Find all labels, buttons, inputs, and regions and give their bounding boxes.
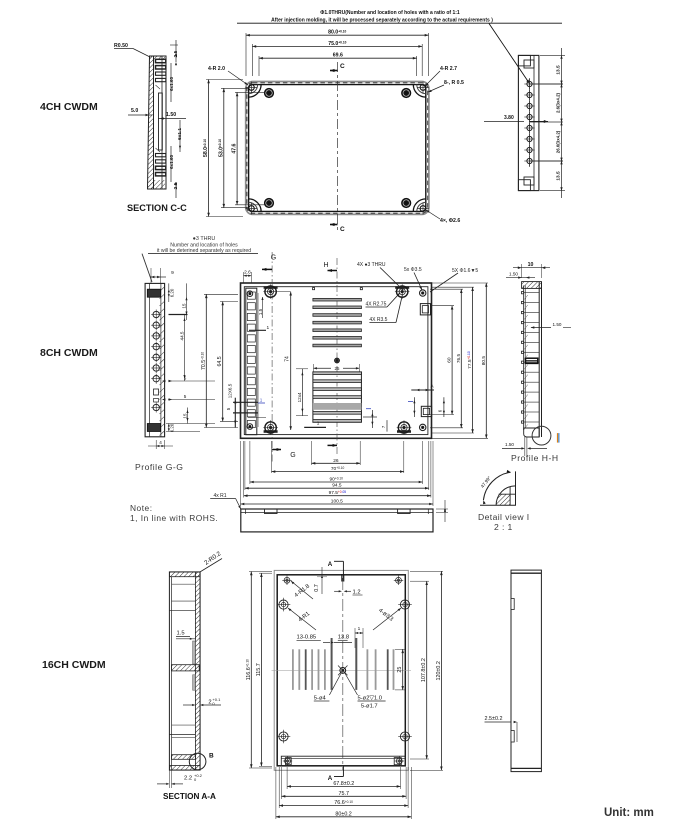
- svg-text:1.5: 1.5: [177, 631, 185, 637]
- svg-text:4-R1.8: 4-R1.8: [294, 583, 311, 598]
- svg-text:A: A: [328, 561, 333, 568]
- svg-text:94.5: 94.5: [332, 483, 342, 489]
- svg-text:76.6+0.10: 76.6+0.10: [334, 800, 353, 806]
- svg-text:G: G: [271, 255, 276, 262]
- svg-text:1: 1: [358, 626, 361, 632]
- svg-text:53.0±0.10: 53.0±0.10: [218, 139, 224, 157]
- svg-text:2.5±0.2: 2.5±0.2: [485, 716, 503, 722]
- svg-text:6.20: 6.20: [170, 423, 175, 432]
- svg-text:2.6: 2.6: [244, 270, 251, 276]
- svg-text:13.5: 13.5: [556, 171, 562, 181]
- svg-text:12x4: 12x4: [297, 392, 302, 402]
- svg-text:16CH CWDM: 16CH CWDM: [42, 659, 106, 671]
- svg-text:5-ø1.7: 5-ø1.7: [361, 704, 378, 710]
- svg-text:4X R2.75: 4X R2.75: [366, 302, 387, 308]
- svg-text:Unit: mm: Unit: mm: [604, 807, 654, 819]
- svg-text:15: 15: [183, 413, 188, 418]
- svg-text:1.2: 1.2: [353, 590, 361, 596]
- svg-text:67.8±0.2: 67.8±0.2: [333, 781, 354, 787]
- svg-text:2 : 1: 2 : 1: [494, 522, 513, 532]
- svg-text:10: 10: [528, 262, 534, 268]
- svg-text:●3 THRU: ●3 THRU: [193, 236, 216, 242]
- svg-text:9: 9: [171, 270, 174, 276]
- svg-text:4X ●3 THRU: 4X ●3 THRU: [357, 262, 386, 268]
- svg-text:3.80: 3.80: [504, 115, 514, 121]
- svg-text:13-0.85: 13-0.85: [297, 635, 317, 641]
- svg-text:76.5: 76.5: [456, 354, 462, 364]
- svg-text:6: 6: [438, 409, 443, 412]
- svg-text:80±0.2: 80±0.2: [335, 811, 351, 817]
- svg-text:4X R3.5: 4X R3.5: [369, 317, 387, 323]
- svg-text:C: C: [340, 226, 345, 233]
- svg-text:Note:: Note:: [130, 503, 153, 513]
- svg-text:5: 5: [226, 407, 231, 410]
- svg-text:58.0±0.10: 58.0±0.10: [203, 139, 209, 157]
- svg-text:116.6+0.10: 116.6+0.10: [246, 659, 252, 680]
- svg-text:B: B: [209, 753, 214, 760]
- svg-text:4-R 2.0: 4-R 2.0: [208, 66, 225, 72]
- svg-text:5.0: 5.0: [131, 108, 138, 114]
- svg-text:G: G: [290, 452, 295, 459]
- svg-text:90+0.10: 90+0.10: [329, 476, 343, 482]
- svg-text:77.5+0.10: 77.5+0.10: [467, 351, 473, 369]
- svg-text:6x1.60: 6x1.60: [169, 155, 174, 169]
- svg-text:15: 15: [182, 303, 187, 308]
- svg-text:5-ø2▽1.0: 5-ø2▽1.0: [358, 696, 382, 702]
- svg-text:70+0.10: 70+0.10: [331, 466, 345, 472]
- svg-text:80.5: 80.5: [481, 356, 487, 366]
- svg-text:26.0(3x4.2): 26.0(3x4.2): [556, 130, 561, 153]
- svg-text:2: 2: [208, 700, 211, 706]
- svg-text:47.6: 47.6: [232, 143, 238, 153]
- svg-text:6x1.60: 6x1.60: [169, 77, 174, 91]
- svg-text:4-R 2.7: 4-R 2.7: [440, 66, 457, 72]
- svg-text:120±0.2: 120±0.2: [436, 661, 442, 680]
- svg-text:4x R1: 4x R1: [214, 493, 227, 499]
- svg-text:R0.50: R0.50: [114, 43, 128, 49]
- svg-text:12X6.5: 12X6.5: [227, 383, 232, 398]
- svg-text:4CH CWDM: 4CH CWDM: [40, 101, 98, 113]
- svg-text:1: 1: [267, 325, 270, 331]
- svg-text:100.5: 100.5: [331, 499, 343, 505]
- svg-text:1.5: 1.5: [258, 308, 263, 315]
- svg-text:After injection molding, it wi: After injection molding, it will be proc…: [271, 18, 493, 24]
- svg-text:70.5+0.10: 70.5+0.10: [201, 352, 207, 370]
- svg-text:1.50: 1.50: [509, 271, 518, 276]
- svg-text:2.6(3x4.2): 2.6(3x4.2): [556, 92, 561, 113]
- svg-text:13.5: 13.5: [556, 65, 562, 75]
- svg-text:8CH CWDM: 8CH CWDM: [40, 347, 98, 359]
- svg-text:80.0+0.10: 80.0+0.10: [328, 30, 346, 36]
- svg-text:8-, R 0.5: 8-, R 0.5: [444, 80, 464, 86]
- svg-text:5: 5: [184, 376, 187, 381]
- svg-text:1.50: 1.50: [166, 112, 176, 118]
- svg-text:Profile H-H: Profile H-H: [511, 453, 559, 463]
- svg-text:Profile G-G: Profile G-G: [135, 462, 183, 472]
- svg-text:25: 25: [335, 366, 340, 371]
- svg-text:64.5: 64.5: [217, 356, 223, 366]
- svg-text:A: A: [328, 775, 333, 782]
- svg-text:25: 25: [397, 667, 403, 673]
- svg-text:2.2: 2.2: [184, 776, 192, 782]
- svg-text:1.50: 1.50: [553, 322, 562, 327]
- svg-text:4: 4: [159, 440, 162, 445]
- svg-text:C: C: [340, 63, 345, 70]
- svg-text:1: 1: [260, 398, 263, 403]
- svg-text:H: H: [323, 262, 328, 269]
- svg-text:5: 5: [184, 394, 187, 399]
- svg-text:5-ø4: 5-ø4: [314, 696, 327, 702]
- svg-text:SECTION C-C: SECTION C-C: [127, 203, 187, 213]
- svg-text:5X Φ1.6▼5: 5X Φ1.6▼5: [452, 268, 478, 274]
- svg-text:A: A: [430, 384, 434, 389]
- svg-text:26: 26: [333, 458, 339, 464]
- svg-text:4×, Φ2.6: 4×, Φ2.6: [440, 218, 460, 224]
- svg-text:13.8: 13.8: [338, 635, 349, 641]
- svg-text:Detail view I: Detail view I: [478, 512, 530, 522]
- svg-text:1: 1: [317, 421, 320, 426]
- svg-text:74: 74: [284, 356, 290, 362]
- svg-text:97.5+0.05: 97.5+0.05: [329, 490, 347, 496]
- svg-text:115.7: 115.7: [256, 663, 262, 676]
- svg-text:1.50: 1.50: [505, 442, 514, 447]
- svg-text:SECTION A-A: SECTION A-A: [163, 792, 216, 801]
- svg-text:47.99°: 47.99°: [480, 475, 492, 489]
- svg-text:60: 60: [447, 357, 453, 363]
- svg-text:Φ1.0THRU(Number and location o: Φ1.0THRU(Number and location of holes wi…: [320, 10, 460, 16]
- svg-text:6.20: 6.20: [170, 288, 175, 297]
- svg-text:75.0+0.10: 75.0+0.10: [328, 41, 346, 47]
- svg-text:7: 7: [381, 425, 386, 428]
- svg-text:69.6: 69.6: [333, 53, 343, 59]
- svg-text:0.7: 0.7: [314, 584, 320, 592]
- svg-text:5x Φ3.5: 5x Φ3.5: [404, 267, 422, 273]
- svg-text:75.7: 75.7: [339, 791, 350, 797]
- svg-text:1, In line with ROHS.: 1, In line with ROHS.: [130, 513, 218, 523]
- svg-text:107.8±0.2: 107.8±0.2: [421, 658, 427, 682]
- svg-text:44.5: 44.5: [180, 331, 185, 340]
